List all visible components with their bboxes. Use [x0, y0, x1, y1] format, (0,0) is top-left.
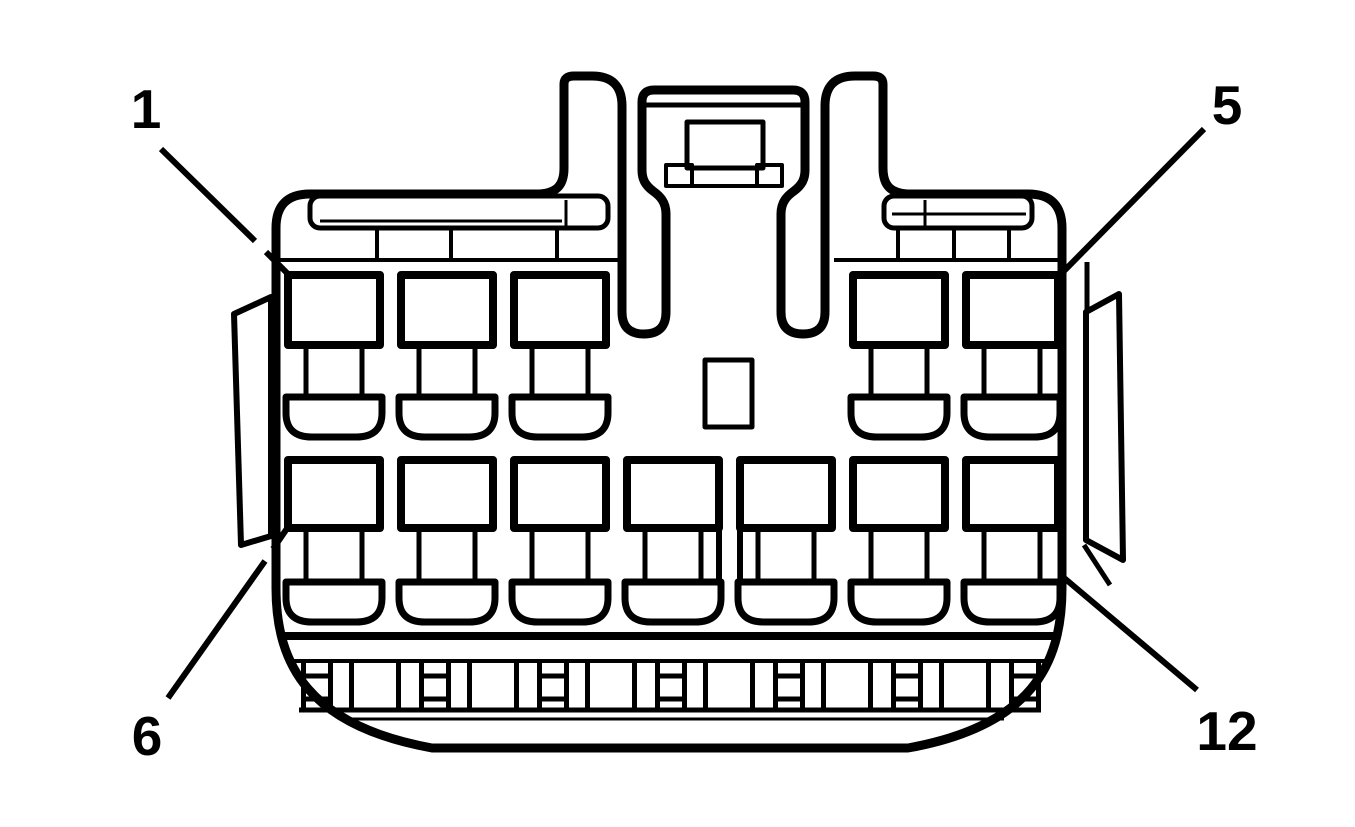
pin-bowl	[964, 582, 1060, 622]
top-rib-left	[310, 196, 608, 228]
pin-cavity	[966, 275, 1058, 345]
latch-button	[687, 122, 763, 168]
leader-line-pin5	[1062, 129, 1204, 273]
connector-diagram-page: 1 5 6 12	[0, 0, 1355, 827]
pin-cavity	[627, 460, 719, 528]
pin-cavity	[288, 275, 380, 345]
pin-bowl	[851, 397, 947, 437]
pin-bowl	[399, 397, 495, 437]
top-rib-steps	[377, 229, 1009, 259]
pin-label-5: 5	[1212, 74, 1243, 136]
pin-bowl	[512, 397, 608, 437]
pin-label-12: 12	[1196, 700, 1257, 762]
pin-cavity	[740, 460, 832, 528]
pin-cavity	[401, 275, 493, 345]
leader-lines	[161, 129, 1204, 698]
top-rib-right	[884, 196, 1032, 228]
pin-cavity	[853, 275, 945, 345]
pin-cavity	[288, 460, 380, 528]
pin-bowl	[286, 582, 382, 622]
pin-cavity	[514, 275, 606, 345]
side-tab-left	[234, 297, 271, 545]
pin-bowl	[851, 582, 947, 622]
pin-cavity	[514, 460, 606, 528]
pin-label-1: 1	[131, 78, 162, 140]
lock-comb-strip	[304, 659, 1039, 710]
pin-bowl	[738, 582, 834, 622]
pin-cavity	[966, 460, 1058, 528]
connector-pinout-diagram: 1 5 6 12	[0, 0, 1355, 827]
side-tab-right	[1086, 294, 1123, 560]
pin-row-top	[286, 275, 1060, 437]
pin-bowl	[512, 582, 608, 622]
leader-line-pin12	[1063, 577, 1197, 690]
leader-line-pin1-a	[161, 149, 255, 241]
pin-label-6: 6	[132, 705, 163, 767]
pin-cavity	[401, 460, 493, 528]
pin-row-bottom	[286, 460, 1060, 622]
pin-cavity	[853, 460, 945, 528]
leader-line-pin6-b	[168, 561, 265, 698]
pin-bowl	[286, 397, 382, 437]
pin-bowl	[399, 582, 495, 622]
pin-bowl	[964, 397, 1060, 437]
polarizing-key	[705, 360, 752, 427]
pin-bowl	[625, 582, 721, 622]
